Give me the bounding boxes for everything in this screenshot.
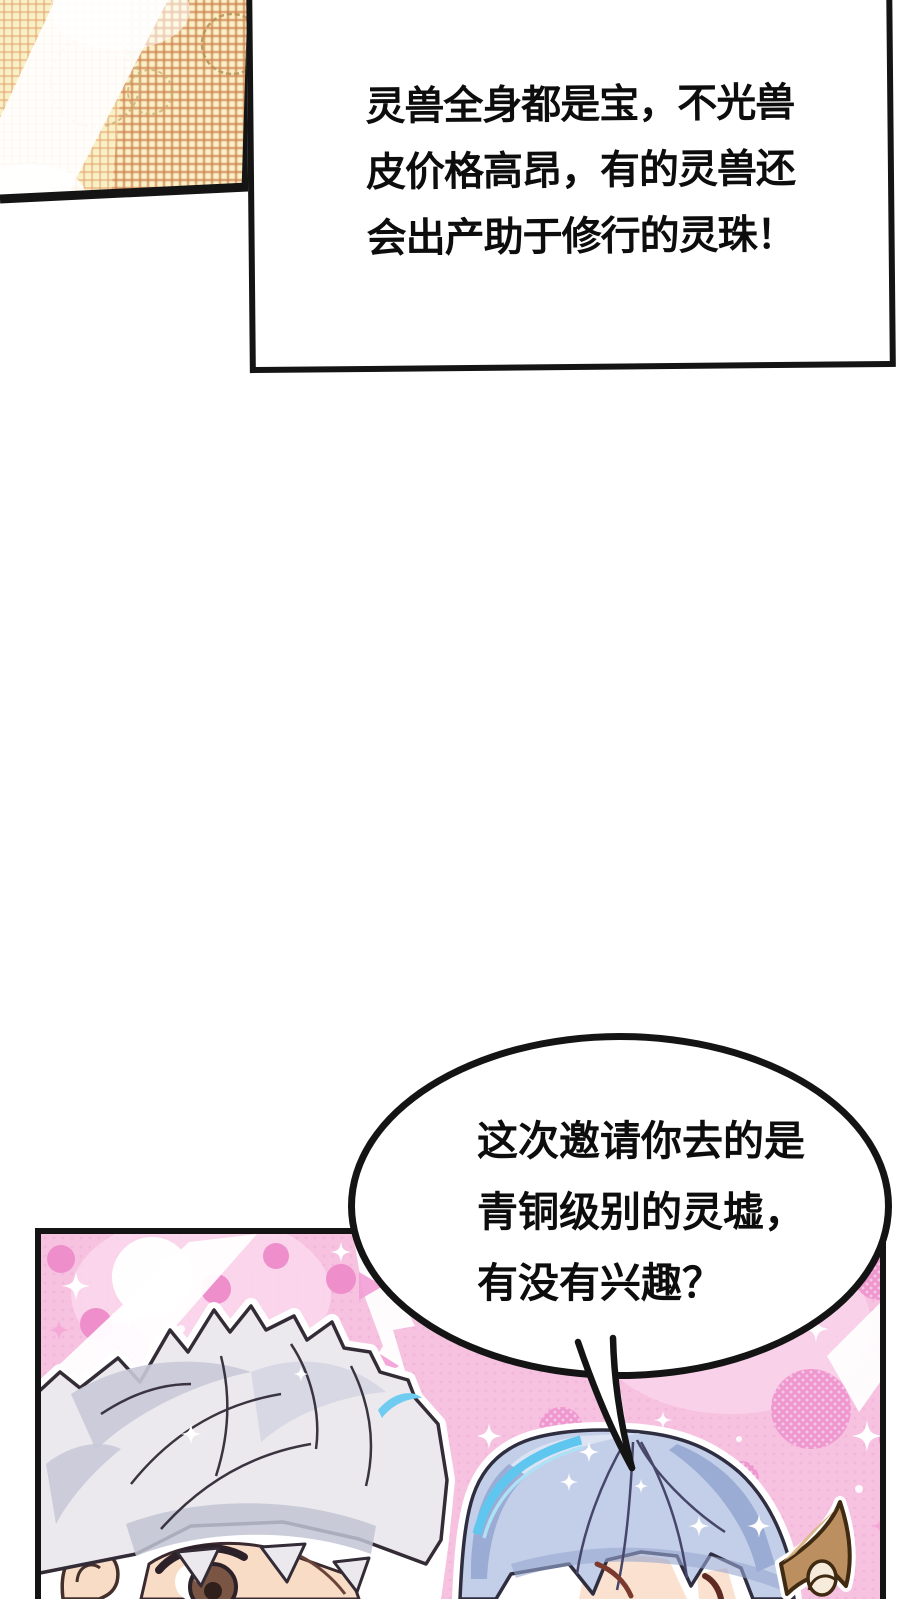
panel-treasure-glow	[0, 0, 258, 214]
narration-line: 会出产助于修行的灵珠！	[366, 202, 796, 272]
narration-text: 灵兽全身都是宝，不光兽 皮价格高昂，有的灵兽还 会出产助于修行的灵珠！	[365, 70, 796, 272]
comic-page: 灵兽全身都是宝，不光兽 皮价格高昂，有的灵兽还 会出产助于修行的灵珠！	[0, 0, 900, 1599]
speech-bubble-text: 这次邀请你去的是 青铜级别的灵墟， 有没有兴趣？	[477, 1106, 805, 1319]
narration-box: 灵兽全身都是宝，不光兽 皮价格高昂，有的灵兽还 会出产助于修行的灵珠！	[246, 0, 896, 373]
speech-line: 这次邀请你去的是	[477, 1106, 805, 1177]
speech-bubble-tail	[555, 1330, 655, 1475]
narration-line: 皮价格高昂，有的灵兽还	[366, 136, 796, 206]
speech-line: 青铜级别的灵墟，	[477, 1177, 805, 1248]
speech-line: 有没有兴趣？	[477, 1248, 805, 1319]
narration-line: 灵兽全身都是宝，不光兽	[365, 70, 795, 140]
gold-halftone-background	[0, 0, 258, 214]
